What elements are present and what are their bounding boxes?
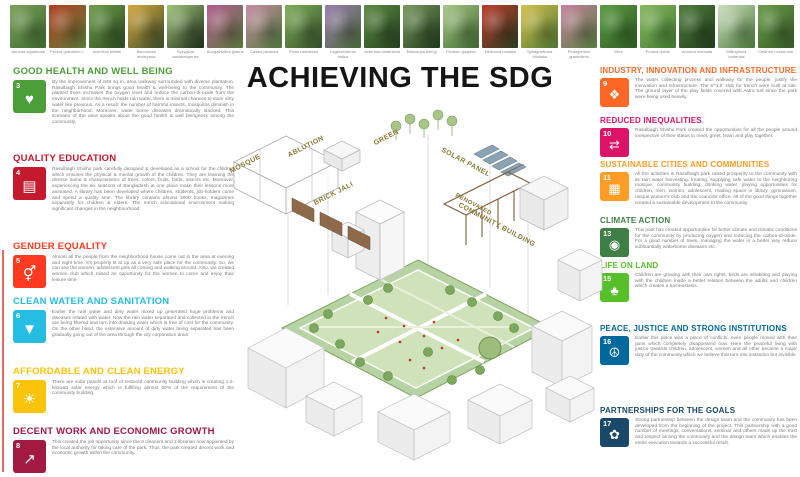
eye-globe-icon: ◉ <box>600 228 629 257</box>
sdg-goal-body-text: This created the job opportunity since t… <box>52 440 234 457</box>
plant-name-label: Cassia javanica <box>246 50 282 55</box>
plant-photo <box>49 5 85 48</box>
plant-photo <box>128 5 164 48</box>
sdg-goal-block: CLEAN WATER AND SANITATION 6 ▼ Earlier t… <box>13 296 234 343</box>
city-skyline-icon: ▦ <box>600 172 629 201</box>
plant-name-label: Punica granatum L. <box>49 50 85 55</box>
plant-photo <box>561 5 597 48</box>
plant-name-label: Millingtonia hortensis <box>718 50 754 59</box>
plant-tile: Ficus racemosa <box>285 5 321 61</box>
sdg-goal-icon: 7 ☀ <box>13 380 46 413</box>
plant-tile: Baccaurea motleyana <box>128 5 164 61</box>
sdg-goal-heading: LIFE ON LAND <box>600 261 797 270</box>
plant-photo <box>364 5 400 48</box>
plant-tile: Punica granatum L. <box>49 5 85 61</box>
plant-tile: Cestrum nocturnum <box>758 5 794 61</box>
plant-name-label: Syzygium samarangense <box>167 50 203 59</box>
plant-name-label: Averrhoa bilimbi <box>89 50 125 55</box>
sdg-goal-heading: INDUSTRY, INNOVATION AND INFRASTRUCTURE <box>600 66 797 75</box>
plant-tile: Annona muricata <box>679 5 715 61</box>
sdg-goal-body-text: The water collecting process and walkway… <box>635 78 797 101</box>
plant-tile: Bougainvillea glabra <box>207 5 243 61</box>
plant-tile: Annona squamosa <box>10 5 46 61</box>
page-title: ACHIEVING THE SDG <box>225 62 575 95</box>
dove-gavel-icon: ☮ <box>600 336 629 365</box>
sdg-goal-block: PEACE, JUSTICE AND STRONG INSTITUTIONS 1… <box>600 324 797 365</box>
sdg-goal-heading: CLEAN WATER AND SANITATION <box>13 296 234 307</box>
plant-name-label: Lagerstroemia indica <box>325 50 361 59</box>
sdg-goal-heading: GOOD HEALTH AND WELL BEING <box>13 66 234 77</box>
plant-photo <box>600 5 636 48</box>
plant-photo-strip: Annona squamosa Punica granatum L. Averr… <box>10 5 794 61</box>
sdg-goal-icon: 6 ▼ <box>13 310 46 343</box>
sdg-goal-heading: PEACE, JUSTICE AND STRONG INSTITUTIONS <box>600 324 797 333</box>
sdg-goal-body-text: This park has created opportunities for … <box>635 228 797 251</box>
gender-equality-icon: ⚥ <box>13 255 46 288</box>
sdg-goal-icon: 5 ⚥ <box>13 255 46 288</box>
sdg-goal-block: AFFORDABLE AND CLEAN ENERGY 7 ☀ There ar… <box>13 366 234 413</box>
sdg-goal-heading: SUSTAINABLE CITIES AND COMMUNITIES <box>600 160 797 169</box>
plant-name-label: Prunus dulcis <box>640 50 676 55</box>
sdg-goal-heading: QUALITY EDUCATION <box>13 153 234 164</box>
plant-name-label: Mimusops elengi <box>403 50 439 55</box>
sdg-goal-block: LIFE ON LAND 15 ♣ Children are growing w… <box>600 261 797 302</box>
plant-tile: Cassia javanica <box>246 5 282 61</box>
plant-photo <box>521 5 557 48</box>
plant-tile: Syzygium samarangense <box>167 5 203 61</box>
sdg-goal-icon: 15 ♣ <box>600 273 629 302</box>
axonometric-site-drawing: MOSQUE ABLUTION BRICK JALI GREEN SOLAR P… <box>228 100 604 474</box>
plant-photo <box>403 5 439 48</box>
plant-tile: Prunus dulcis <box>640 5 676 61</box>
plant-name-label: Annona muricata <box>679 50 715 55</box>
sdg-goal-body-text: Almost all the people from the neighborh… <box>52 255 234 284</box>
plant-name-label: Heliconia rostrata <box>482 50 518 55</box>
plant-tile: Mimusops elengi <box>403 5 439 61</box>
plant-photo <box>10 5 46 48</box>
plant-photo <box>482 5 518 48</box>
plant-photo <box>89 5 125 48</box>
sdg-goal-icon: 13 ◉ <box>600 228 629 257</box>
sdg-goal-heading: DECENT WORK AND ECONOMIC GROWTH <box>13 426 234 437</box>
plant-name-label: Ficus racemosa <box>285 50 321 55</box>
sdg-goal-body-text: Earlier this place was a place of confli… <box>635 336 797 359</box>
plant-tile: Heliconia rostrata <box>482 5 518 61</box>
plant-tile: Vitex <box>600 5 636 61</box>
growth-chart-icon: ↗ <box>13 440 46 473</box>
sdg-goal-icon: 8 ↗ <box>13 440 46 473</box>
plant-name-label: Annona squamosa <box>10 50 46 55</box>
sdg-goal-block: DECENT WORK AND ECONOMIC GROWTH 8 ↗ This… <box>13 426 234 473</box>
plant-photo <box>443 5 479 48</box>
sdg-goal-block: REDUCED INEQUALITIES 10 ⇄ Rasulbagh Shis… <box>600 116 797 157</box>
plant-tile: Millingtonia hortensis <box>718 5 754 61</box>
plant-photo <box>640 5 676 48</box>
sdg-goal-body-text: Children are growing with their own righ… <box>635 273 797 290</box>
sdg-goal-icon: 11 ▦ <box>600 172 629 201</box>
interlocking-circles-icon: ✿ <box>600 418 629 447</box>
tree-birds-icon: ♣ <box>600 273 629 302</box>
sdg-goal-block: CLIMATE ACTION 13 ◉ This park has create… <box>600 216 797 257</box>
plant-photo <box>246 5 282 48</box>
left-edge-accent-line <box>2 250 4 472</box>
sdg-goal-block: GENDER EQUALITY 5 ⚥ Almost all the peopl… <box>13 241 234 288</box>
sdg-goal-icon: 4 ▤ <box>13 167 46 200</box>
plant-tile: Lagerstroemia indica <box>325 5 361 61</box>
sdg-goal-body-text: By the improvement of 848 sq m. area wal… <box>52 80 234 126</box>
water-drop-icon: ▼ <box>13 310 46 343</box>
sdg-goal-block: PARTNERSHIPS FOR THE GOALS 17 ✿ Strong p… <box>600 406 797 447</box>
plant-name-label: Bougainvillea glabra <box>207 50 243 55</box>
sdg-goal-body-text: Earlier the rain water and dirty water m… <box>52 310 234 339</box>
plant-photo <box>718 5 754 48</box>
sdg-goal-body-text: Rasulbagh Shishu Park created the opport… <box>635 128 797 139</box>
sdg-goal-heading: CLIMATE ACTION <box>600 216 797 225</box>
plant-tile: Sphagneticola trilobata <box>521 5 557 61</box>
plant-tile: Pelargonium graveolens <box>561 5 597 61</box>
plant-photo <box>167 5 203 48</box>
plant-name-label: Vitex <box>600 50 636 55</box>
sdg-goal-icon: 3 ♥ <box>13 80 46 113</box>
sdg-goal-block: QUALITY EDUCATION 4 ▤ Rasulbagh Shishu p… <box>13 153 234 213</box>
sdg-goal-heading: PARTNERSHIPS FOR THE GOALS <box>600 406 797 415</box>
site-drawing-svg <box>228 100 604 474</box>
sdg-presentation-board: Annona squamosa Punica granatum L. Averr… <box>0 0 800 477</box>
plant-name-label: Averrhoa carambola <box>364 50 400 55</box>
plant-name-label: Pelargonium graveolens <box>561 50 597 59</box>
plant-photo <box>679 5 715 48</box>
building-blocks-icon: ❖ <box>600 78 629 107</box>
sdg-goal-icon: 10 ⇄ <box>600 128 629 157</box>
sdg-goal-block: SUSTAINABLE CITIES AND COMMUNITIES 11 ▦ … <box>600 160 797 206</box>
sun-icon: ☀ <box>13 380 46 413</box>
plant-photo <box>285 5 321 48</box>
equality-arrows-icon: ⇄ <box>600 128 629 157</box>
sdg-goal-heading: AFFORDABLE AND CLEAN ENERGY <box>13 366 234 377</box>
heartbeat-icon: ♥ <box>13 80 46 113</box>
plant-tile: Psidium guajava <box>443 5 479 61</box>
sdg-goal-body-text: All the activities in Rasulbagh park rai… <box>635 172 797 206</box>
sdg-goal-icon: 9 ❖ <box>600 78 629 107</box>
open-book-icon: ▤ <box>13 167 46 200</box>
sdg-goal-icon: 16 ☮ <box>600 336 629 365</box>
plant-name-label: Psidium guajava <box>443 50 479 55</box>
plant-photo <box>207 5 243 48</box>
plant-photo <box>758 5 794 48</box>
plant-tile: Averrhoa carambola <box>364 5 400 61</box>
sdg-goal-body-text: There are solar panels at roof of restor… <box>52 380 234 397</box>
plant-name-label: Baccaurea motleyana <box>128 50 164 59</box>
sdg-goal-icon: 17 ✿ <box>600 418 629 447</box>
sdg-goal-block: INDUSTRY, INNOVATION AND INFRASTRUCTURE … <box>600 66 797 107</box>
sdg-goal-body-text: Strong partnership between the design te… <box>635 418 797 447</box>
plant-tile: Averrhoa bilimbi <box>89 5 125 61</box>
sdg-goal-body-text: Rasulbagh Shishu park carefully designed… <box>52 167 234 213</box>
sdg-goal-block: GOOD HEALTH AND WELL BEING 3 ♥ By the im… <box>13 66 234 126</box>
plant-name-label: Sphagneticola trilobata <box>521 50 557 59</box>
sdg-goal-heading: GENDER EQUALITY <box>13 241 234 252</box>
plant-photo <box>325 5 361 48</box>
sdg-goal-heading: REDUCED INEQUALITIES <box>600 116 797 125</box>
plant-name-label: Cestrum nocturnum <box>758 50 794 55</box>
